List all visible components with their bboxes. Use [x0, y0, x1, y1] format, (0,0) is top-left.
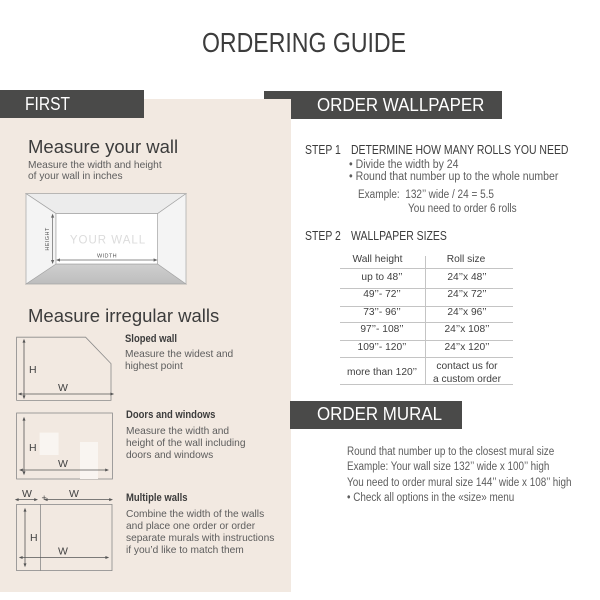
svg-text:YOUR WALL: YOUR WALL [70, 235, 146, 247]
svg-text:H: H [29, 442, 37, 454]
svg-text:H: H [30, 532, 38, 544]
svg-text:W: W [58, 546, 68, 558]
svg-text:W: W [22, 488, 32, 500]
svg-text:+: + [42, 493, 47, 503]
svg-text:W: W [58, 458, 68, 470]
svg-text:WIDTH: WIDTH [97, 254, 117, 260]
svg-text:W: W [58, 382, 68, 394]
svg-text:HEIGHT: HEIGHT [45, 227, 51, 250]
svg-text:H: H [29, 364, 37, 376]
svg-text:W: W [69, 488, 79, 500]
